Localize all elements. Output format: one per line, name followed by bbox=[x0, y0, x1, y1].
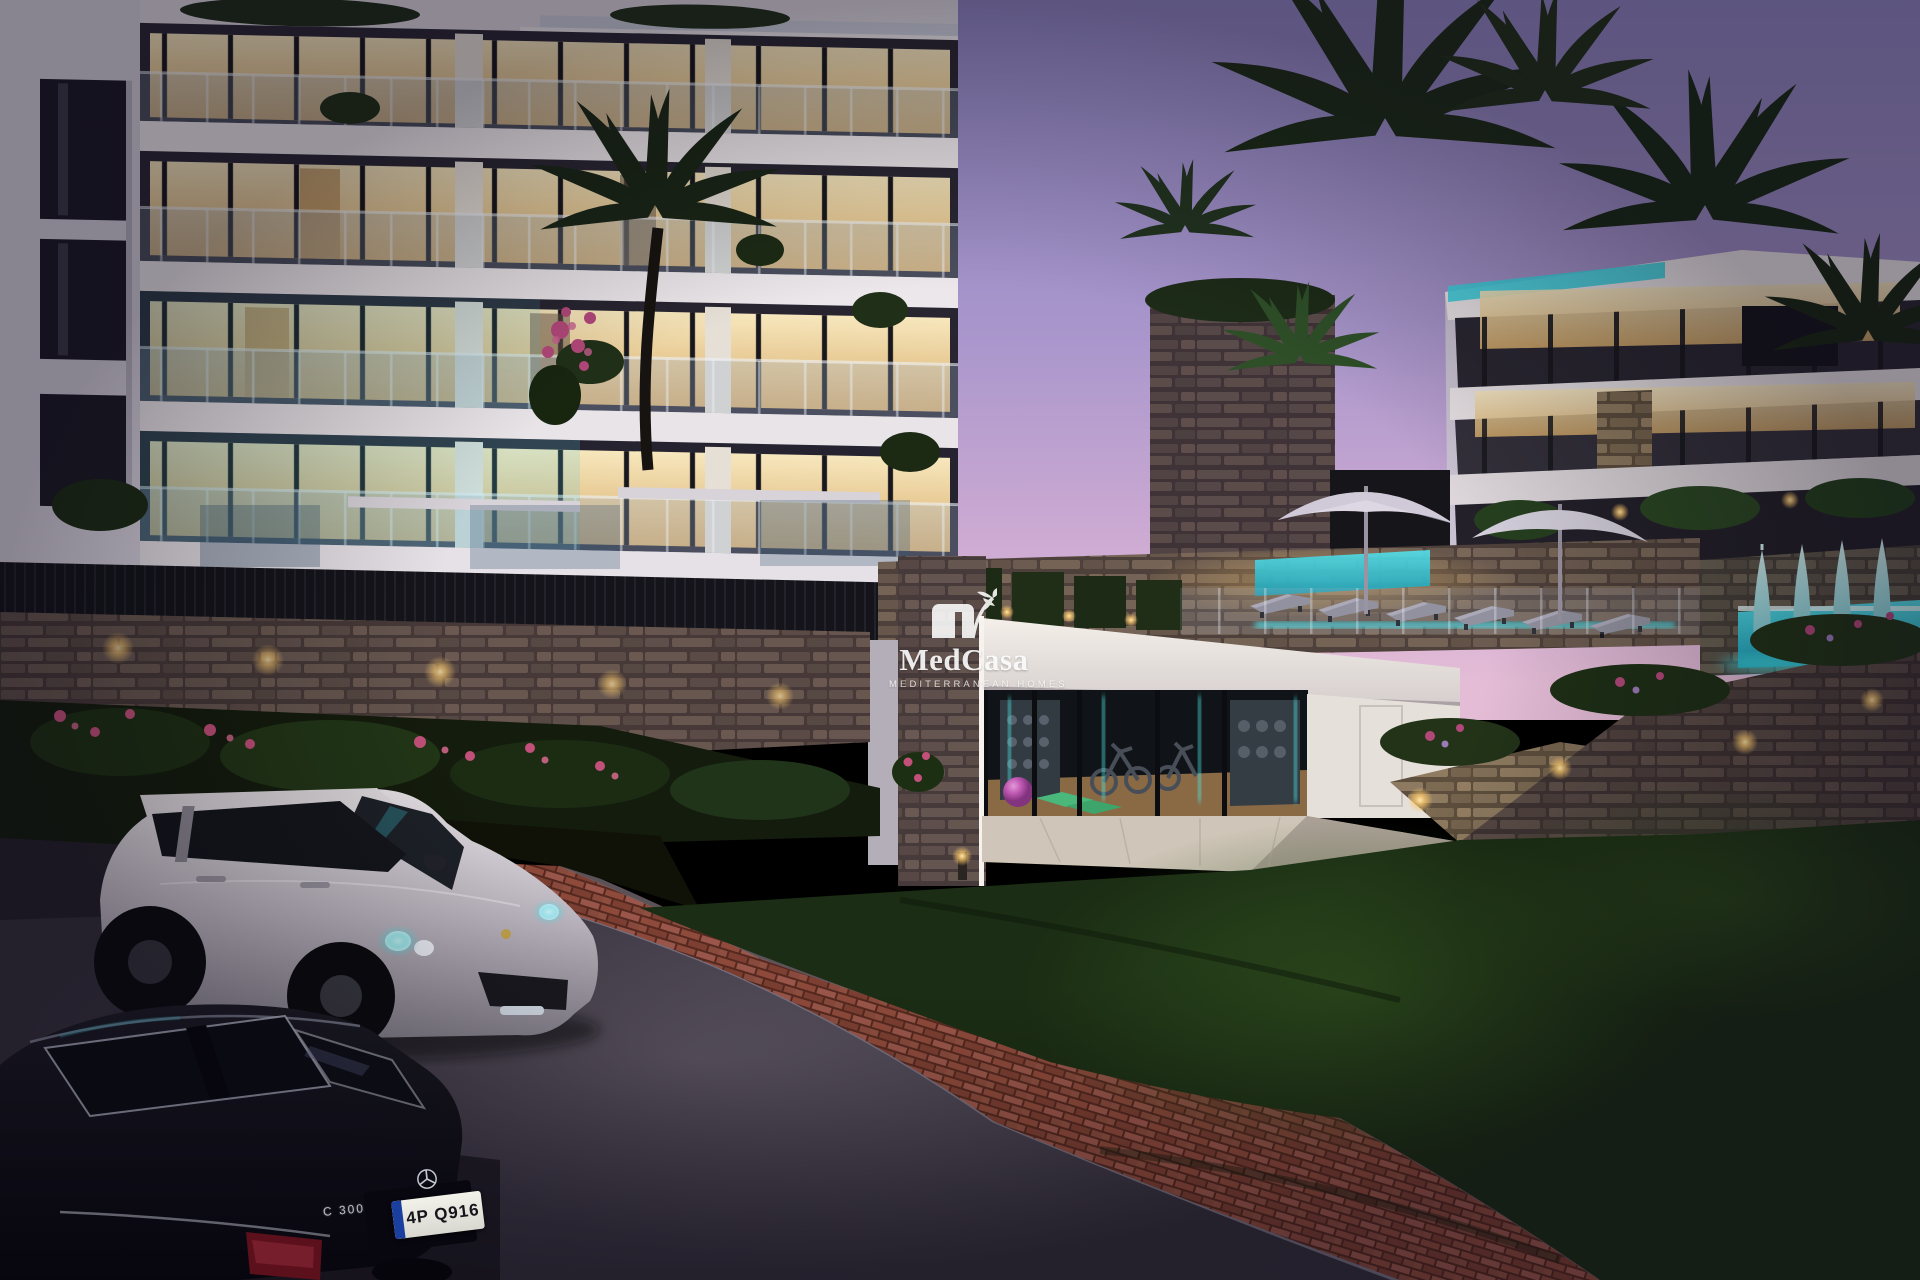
license-plate-number: 4P Q916 bbox=[402, 1200, 484, 1230]
scene-painting bbox=[0, 0, 1920, 1280]
architectural-render-scene: C 300 4P Q916 MedCasa MEDITERRANEAN HOME… bbox=[0, 0, 1920, 1280]
mercedes-star-icon bbox=[415, 1167, 439, 1191]
vignette bbox=[0, 0, 1920, 1280]
